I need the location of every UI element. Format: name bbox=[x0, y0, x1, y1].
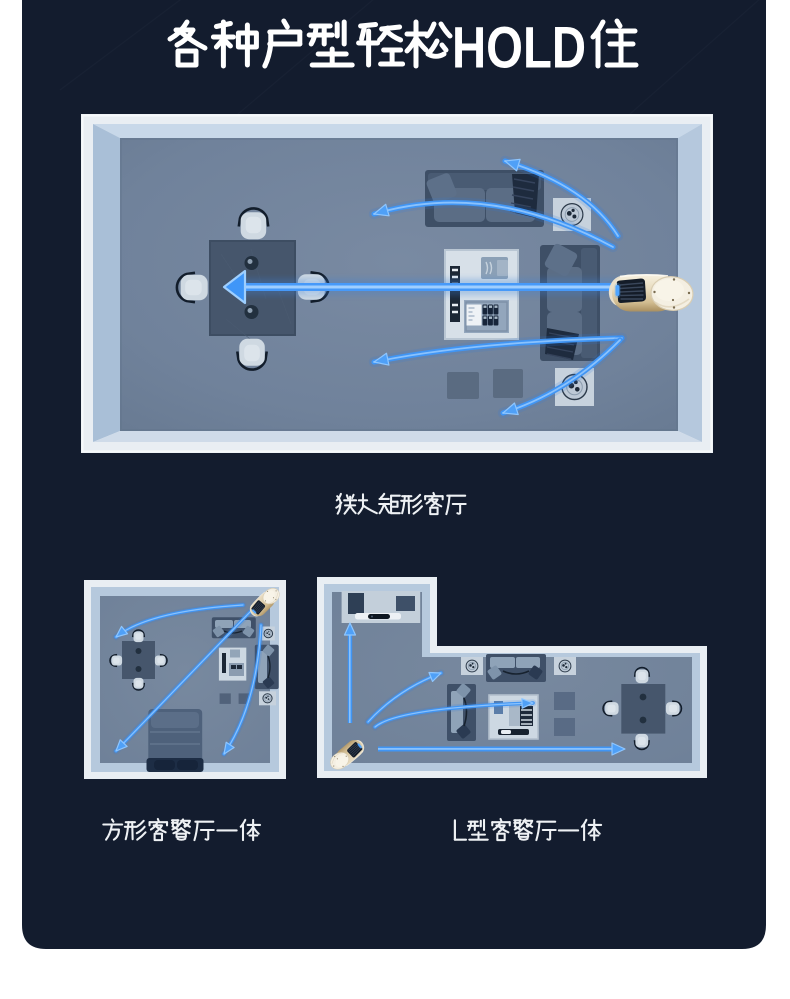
svg-text:HOLD: HOLD bbox=[452, 16, 586, 81]
